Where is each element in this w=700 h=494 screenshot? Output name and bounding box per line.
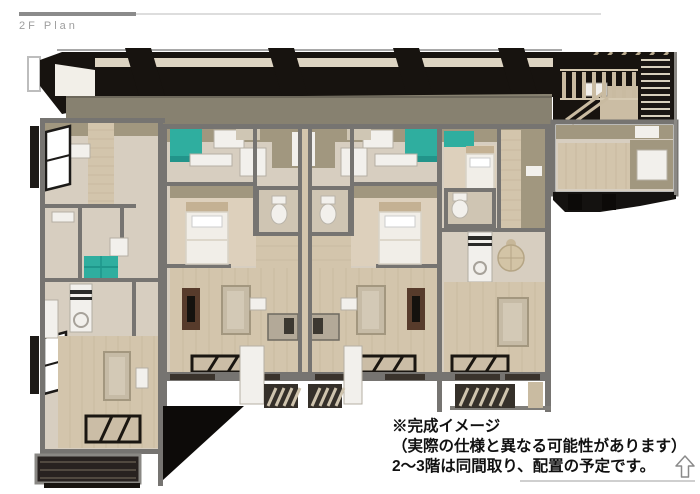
coffee-table <box>136 368 148 388</box>
sofa <box>357 286 385 334</box>
up-arrow-cursor-icon <box>675 455 695 481</box>
bed <box>379 202 421 264</box>
toilet <box>271 204 287 224</box>
sofa <box>498 298 528 346</box>
toilet-room <box>446 190 494 226</box>
entry-grating <box>264 384 300 408</box>
teal-cabinet <box>84 256 118 278</box>
coffee-table <box>341 298 357 310</box>
caption-underline <box>520 480 695 482</box>
tv-board <box>407 288 425 330</box>
shoe-cabinet <box>240 346 264 404</box>
kitchen-counter <box>70 284 92 332</box>
unit-d <box>442 128 545 372</box>
entry-grating <box>308 384 344 408</box>
teal-cabinet <box>444 131 474 147</box>
caption-line3: 2～3階は同間取り、配置の予定です。 <box>392 457 687 477</box>
stair-wing <box>553 52 677 212</box>
unit-c <box>307 128 440 372</box>
sofa <box>104 352 130 400</box>
caption-line1: ※完成イメージ <box>392 417 687 437</box>
bed <box>466 146 494 192</box>
tv-board <box>182 288 200 330</box>
caption: ※完成イメージ （実際の仕様と異なる可能性があります） 2～3階は同間取り、配置… <box>392 417 687 477</box>
wing-room <box>553 122 676 194</box>
page: 2F Plan <box>0 0 700 494</box>
shoe-cabinet <box>344 346 362 404</box>
entrance-mat <box>452 356 508 372</box>
entrance-mat <box>357 356 415 372</box>
entry-grating <box>455 384 515 408</box>
bed <box>186 202 228 264</box>
sofa <box>222 286 250 334</box>
coffee-table <box>250 298 266 310</box>
caption-line2: （実際の仕様と異なる可能性があります） <box>392 437 687 457</box>
lower-floor-shadow <box>163 406 244 480</box>
toilet-room <box>257 188 300 234</box>
window <box>46 126 70 190</box>
entrance-mat <box>86 416 140 442</box>
kitchen-counter <box>468 232 492 282</box>
toilet <box>320 204 336 224</box>
unit-b <box>167 128 300 372</box>
entry-step <box>528 382 543 408</box>
toilet-room <box>307 188 350 234</box>
unit-left <box>30 118 165 488</box>
toilet <box>452 200 468 218</box>
kitchen-counter <box>309 314 339 340</box>
balcony <box>36 455 140 488</box>
kitchen-counter <box>268 314 298 340</box>
